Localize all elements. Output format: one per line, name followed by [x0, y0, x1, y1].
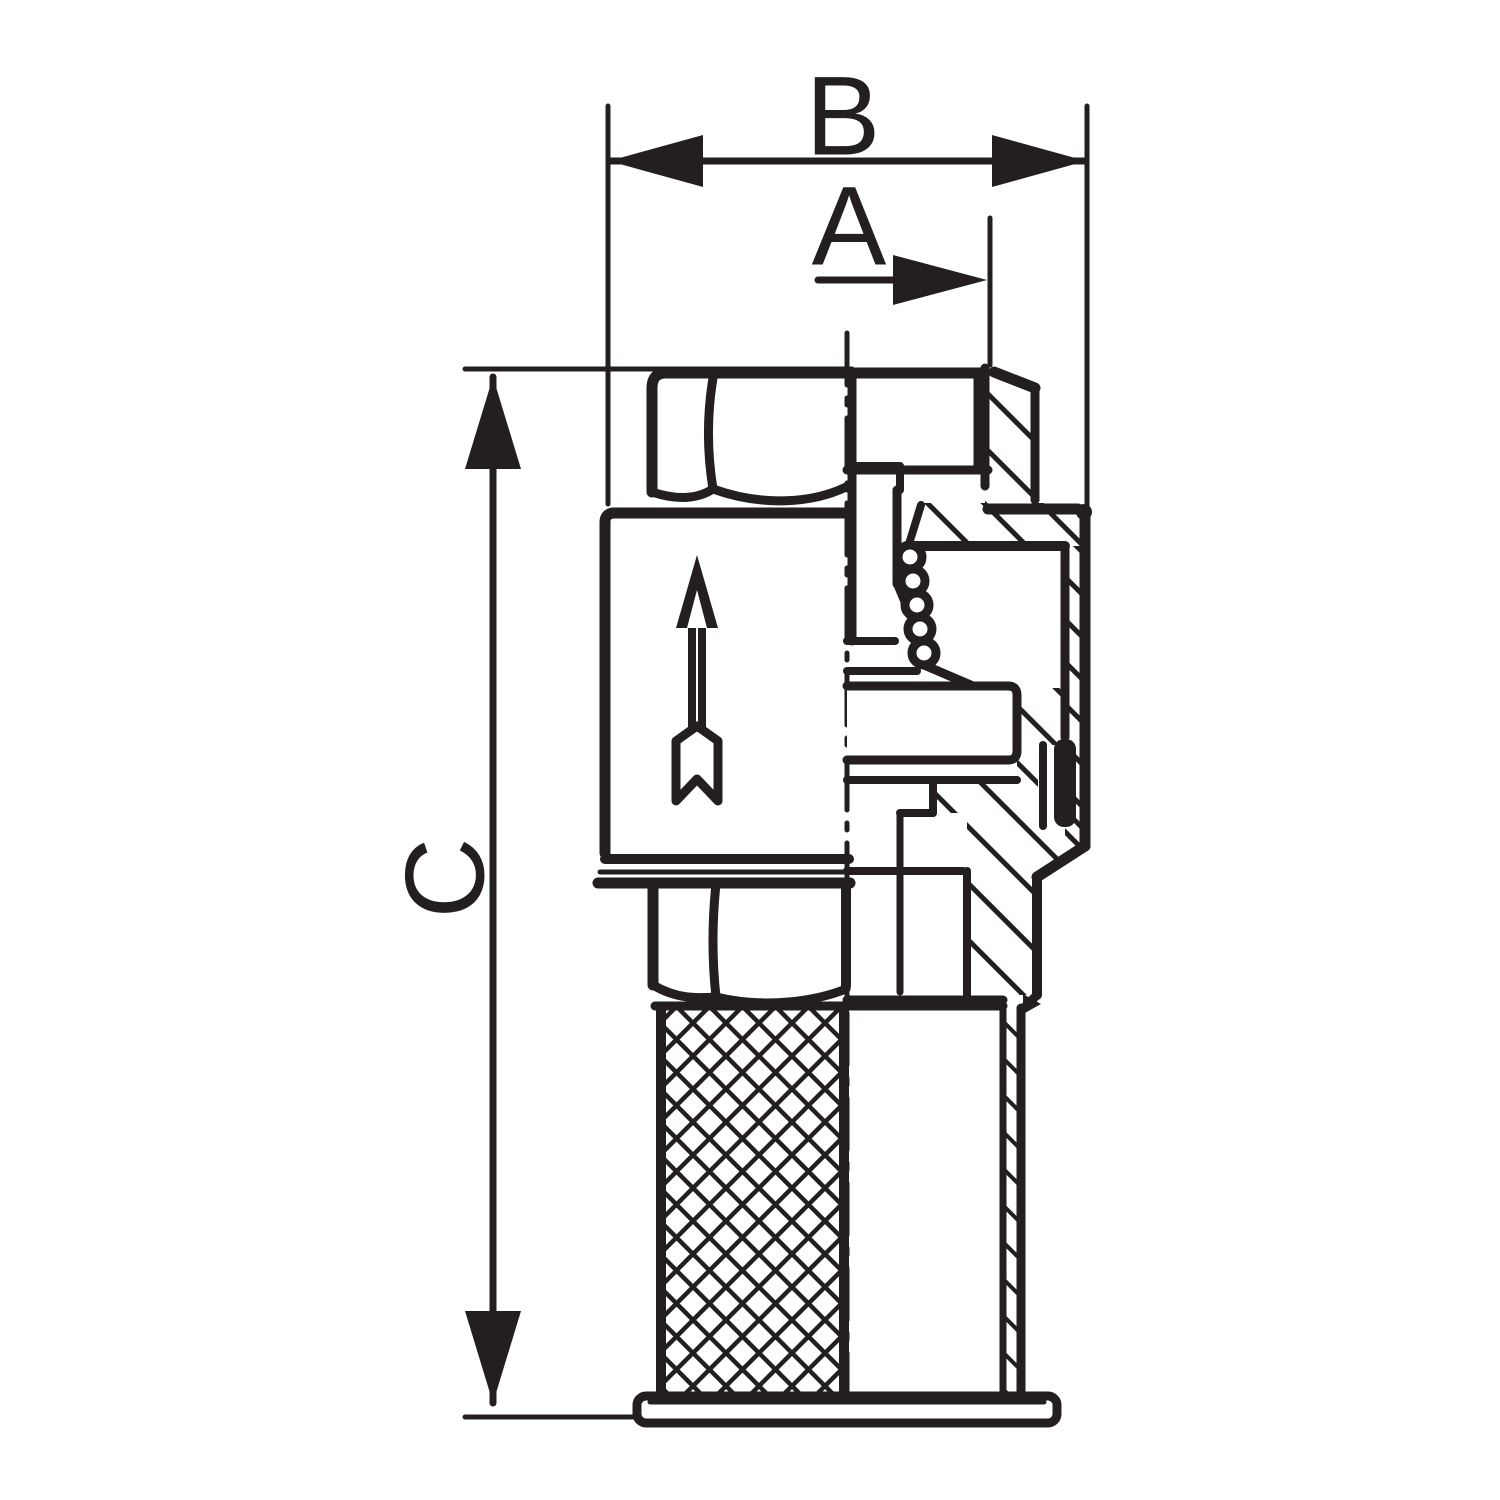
flow-direction-arrow [676, 555, 718, 801]
dimension-a: A [812, 163, 987, 305]
cavity-thread-bore [852, 378, 978, 470]
seal-ring-bar [1054, 739, 1076, 827]
dimension-c: C [382, 377, 521, 1403]
lower-hex-facet-line [713, 884, 716, 997]
flow-arrow-shaft [692, 622, 702, 734]
dimension-label-a: A [812, 163, 887, 288]
cavity-nut-recess [849, 550, 1065, 672]
dimension-arrowhead-b-left [609, 135, 703, 187]
hex-cap-bottom-arc-left [652, 489, 713, 497]
mesh-pattern-area [661, 1009, 844, 1395]
body-outline [605, 513, 849, 853]
lower-hex-bottom-arc-left [653, 985, 716, 998]
section-hatching [908, 371, 1085, 1396]
dimension-arrowhead-c-top [465, 377, 521, 469]
hex-cap-facet-line [709, 378, 714, 489]
stem-cap [850, 466, 900, 490]
base-flange [637, 1396, 1057, 1423]
valve-technical-drawing: B A C [0, 0, 1500, 1500]
poppet-disc [847, 686, 1017, 760]
strainer-mesh [655, 1006, 1003, 1395]
lower-hex-bottom-arc-right [716, 989, 846, 1003]
dimension-label-b: B [806, 53, 881, 178]
dimension-label-c: C [382, 838, 507, 919]
lower-hex [653, 884, 846, 1003]
drawing-canvas: B A C [0, 0, 1500, 1500]
flow-arrow-fletching [676, 726, 718, 801]
hex-cap-bottom-arc-right [713, 487, 846, 501]
valve-body [598, 513, 850, 883]
spring-coil [912, 641, 936, 665]
dimension-arrowhead-c-bottom [465, 1311, 521, 1403]
dimension-arrowhead-b-right [992, 135, 1086, 187]
dimension-arrowhead-a [893, 255, 987, 305]
